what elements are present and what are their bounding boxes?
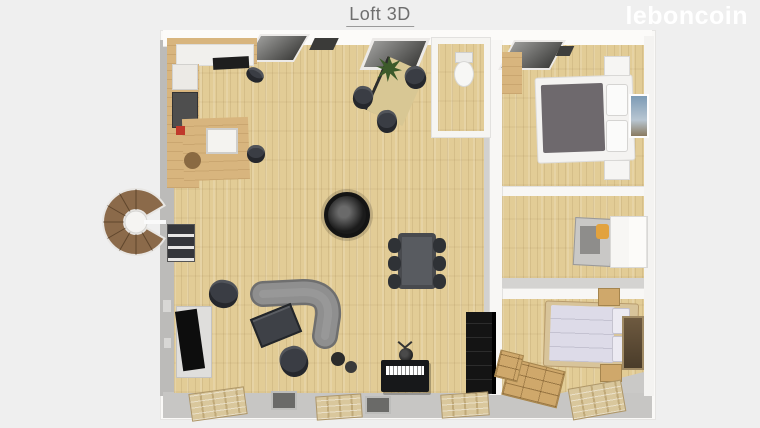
toilet-bowl — [454, 61, 474, 87]
wall-picture — [629, 94, 649, 138]
nightstand-top-2 — [604, 160, 630, 180]
dining-table — [398, 233, 436, 289]
landing-gray-floor — [502, 278, 644, 288]
dining-chair-3 — [388, 274, 401, 289]
pallet-2 — [315, 393, 363, 420]
dining-chair-5 — [433, 256, 446, 271]
bed-top-duvet — [541, 83, 605, 153]
wall-detail-1 — [163, 300, 171, 312]
kitchen-stool — [184, 152, 201, 169]
wall-shelf — [167, 224, 195, 262]
dining-chair-2 — [388, 256, 401, 271]
kitchen-oven — [172, 64, 198, 90]
doormat-2 — [365, 396, 391, 414]
bed-top-pillow-1 — [606, 84, 628, 116]
kitchen-cooktop — [213, 56, 250, 70]
dining-chair-4 — [433, 238, 446, 253]
side-table-2 — [345, 361, 357, 373]
wood-stove — [324, 192, 370, 238]
wardrobe-white — [610, 216, 648, 268]
leboncoin-logo: leboncoin — [625, 2, 748, 31]
piano — [381, 360, 429, 392]
bed-bottom-duvet — [549, 305, 615, 363]
wall-detail-2 — [164, 338, 171, 348]
floorplan-image: Loft 3D leboncoin — [0, 0, 760, 428]
doormat-1 — [271, 391, 297, 410]
pallet-3 — [440, 391, 490, 418]
dining-chair-6 — [433, 274, 446, 289]
spiral-staircase — [96, 176, 170, 270]
wall-rug — [622, 316, 644, 370]
side-table-1 — [331, 352, 345, 366]
dining-chair-1 — [388, 238, 401, 253]
vanity-seat-orange — [596, 224, 609, 239]
bed-top-pillow-2 — [606, 120, 628, 152]
piano-keys — [386, 366, 424, 375]
page-title: Loft 3D — [346, 4, 414, 27]
counter-chair-2 — [247, 145, 265, 163]
kitchen-red-item — [176, 126, 185, 135]
nightstand-bottom-1 — [598, 288, 620, 306]
bedroom-top-dresser — [502, 52, 522, 94]
bookcase-black — [466, 312, 496, 394]
kitchen-sink — [206, 128, 238, 154]
nightstand-top-1 — [604, 56, 630, 76]
